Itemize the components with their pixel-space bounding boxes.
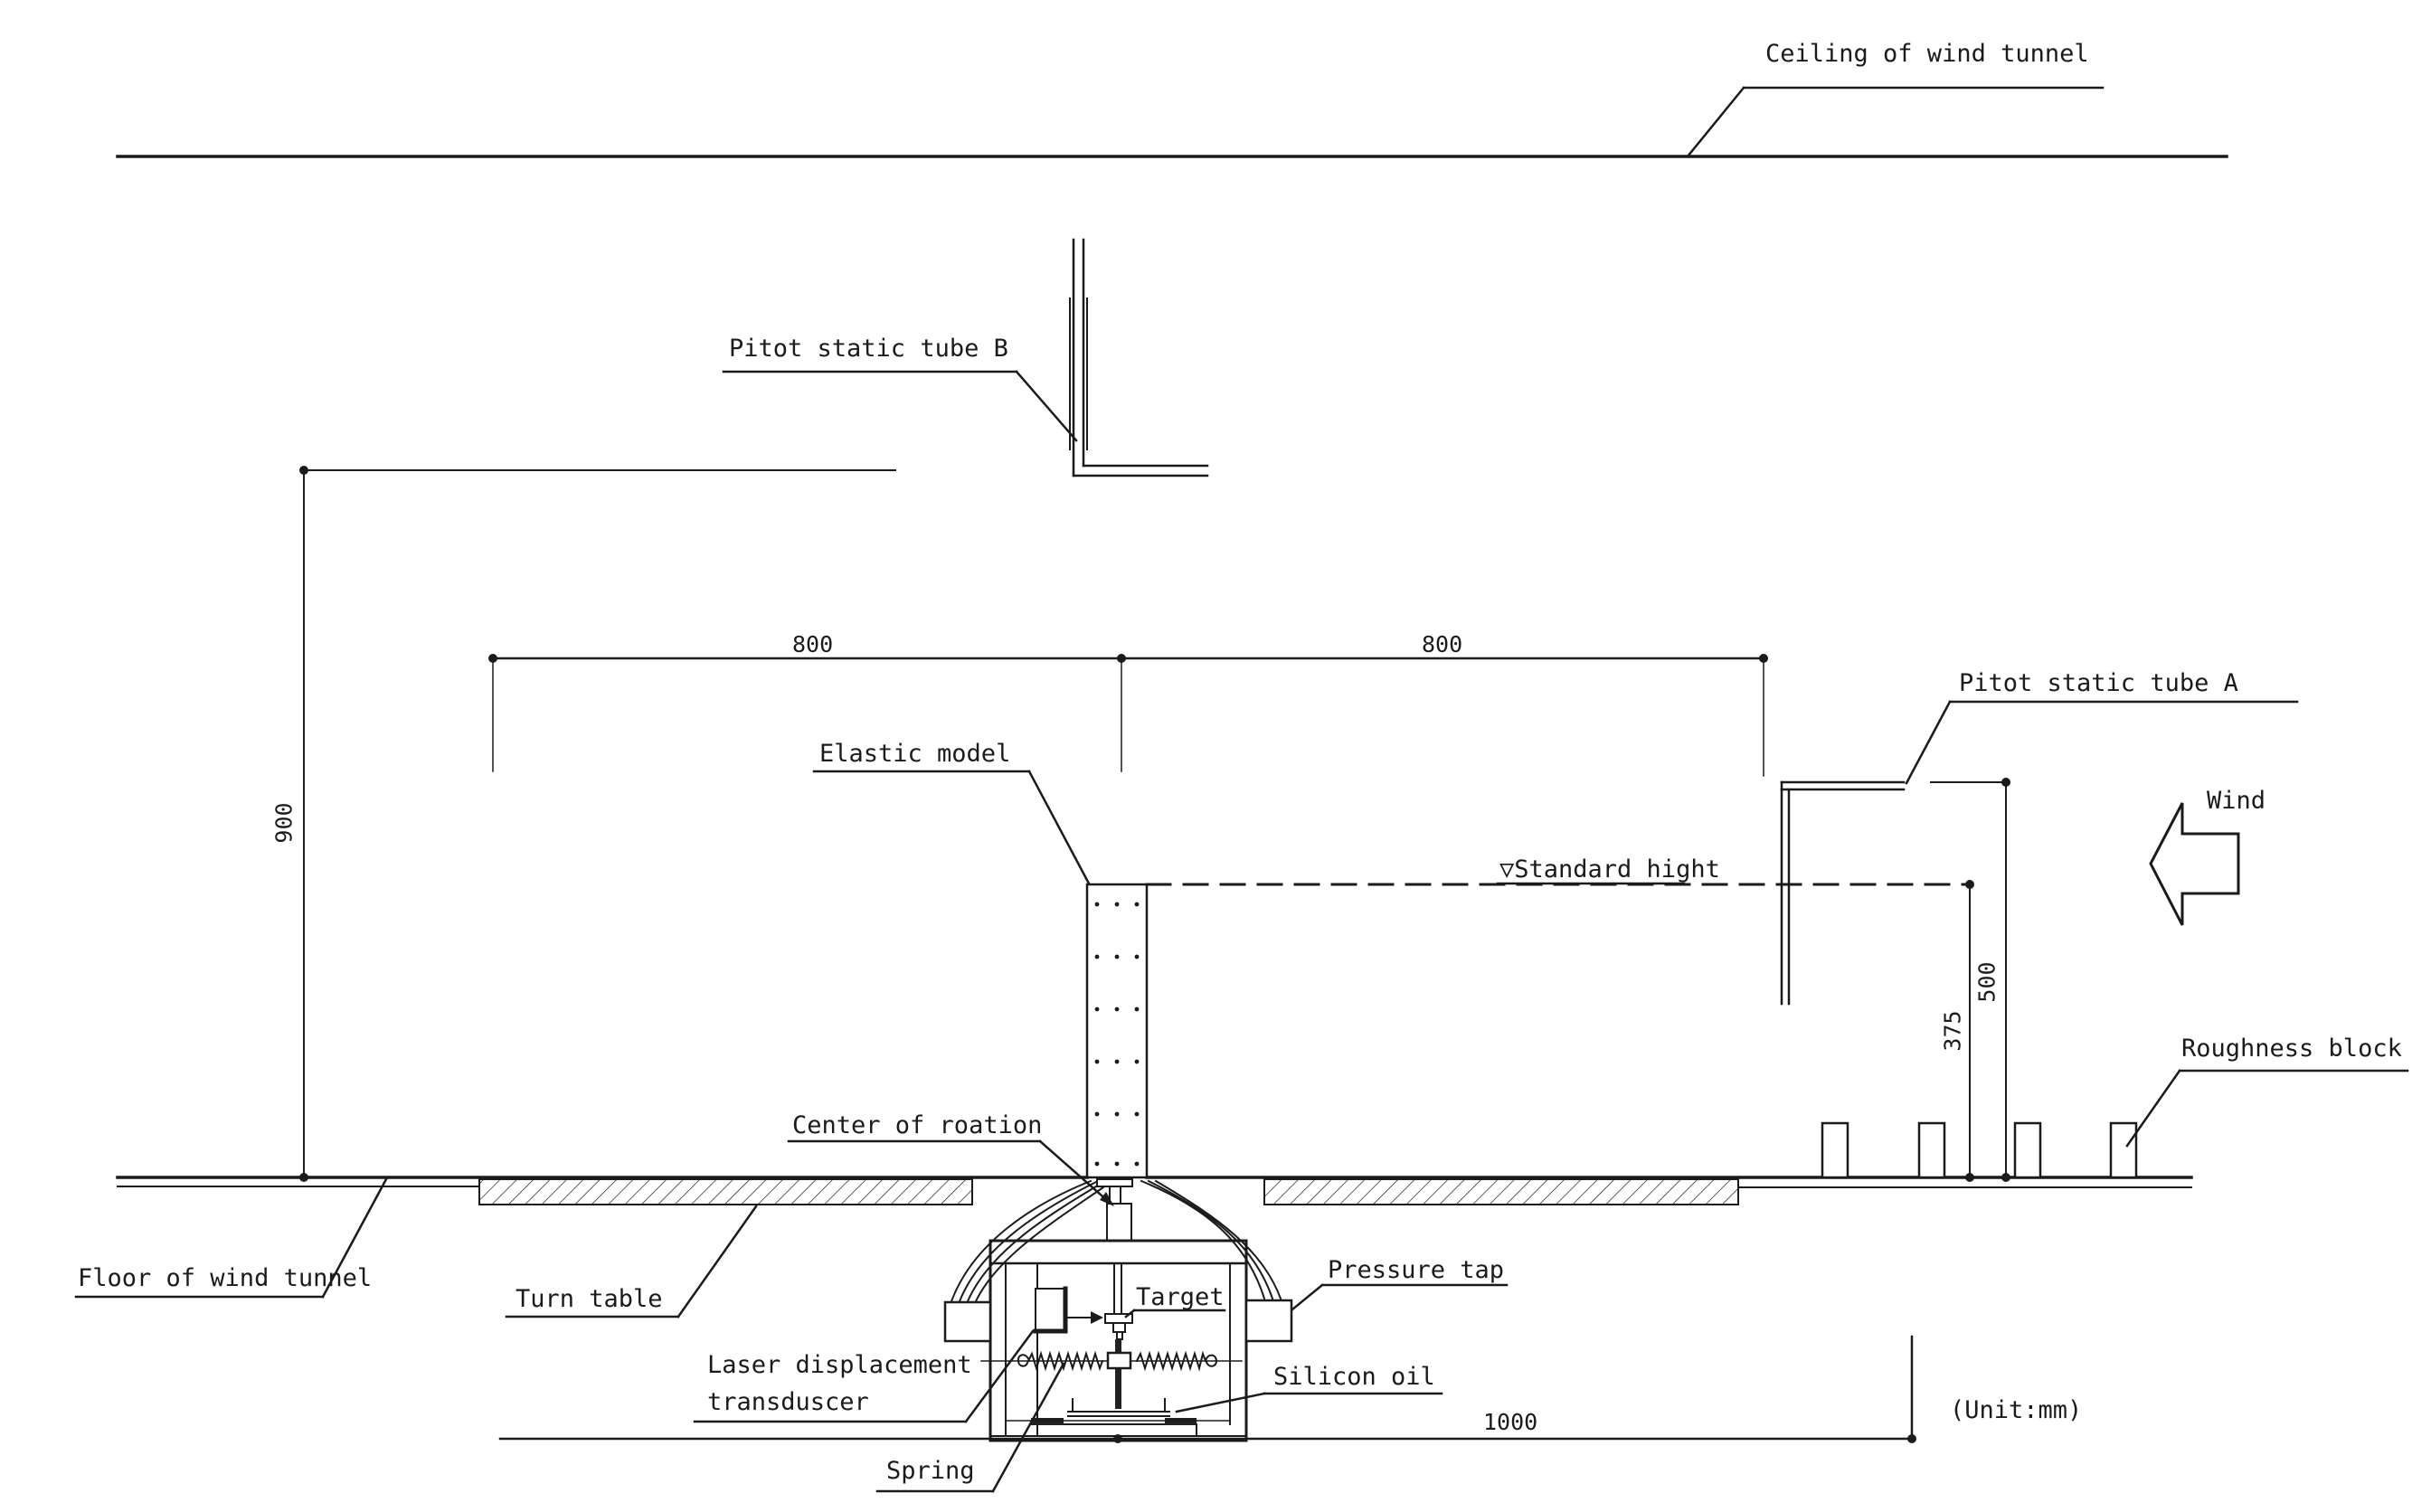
wind-tunnel-diagram: Ceiling of wind tunnel Floor of wind tun… <box>0 0 2431 1512</box>
wind-arrow-icon <box>2151 803 2238 925</box>
dimension-900 <box>299 466 895 1182</box>
label-ceiling: Ceiling of wind tunnel <box>1765 42 2089 67</box>
label-roughness-block: Roughness block <box>2181 1036 2402 1062</box>
label-laser-line1: Laser displacement <box>707 1353 972 1378</box>
label-wind: Wind <box>2207 789 2265 814</box>
standard-height-line <box>1147 884 1970 884</box>
label-target: Target <box>1136 1285 1225 1310</box>
label-pressure-tap: Pressure tap <box>1328 1258 1504 1283</box>
pitot-tube-a <box>1782 702 2297 1004</box>
label-pitot-a: Pitot static tube A <box>1959 671 2238 696</box>
dim-1000: 1000 <box>1483 1409 1537 1435</box>
label-center-of-rotation: Center of roation <box>792 1113 1042 1139</box>
ceiling-line <box>118 88 2227 156</box>
dim-800-right: 800 <box>1422 631 1462 657</box>
label-elastic-model: Elastic model <box>819 742 1010 767</box>
floor-line <box>76 1177 2191 1297</box>
label-standard-height: ▽Standard hight <box>1499 857 1720 883</box>
dim-500: 500 <box>1974 961 2001 1002</box>
label-silicon-oil: Silicon oil <box>1273 1365 1435 1390</box>
label-unit-note: (Unit:mm) <box>1950 1398 2082 1423</box>
label-spring: Spring <box>886 1459 975 1484</box>
oil-damper <box>1006 1394 1442 1425</box>
dimension-800-800 <box>488 654 1768 776</box>
dim-375: 375 <box>1940 1010 1966 1051</box>
label-floor: Floor of wind tunnel <box>78 1266 372 1291</box>
dimension-375 <box>1965 880 1974 1182</box>
label-pitot-b: Pitot static tube B <box>729 336 1008 362</box>
dim-800-left: 800 <box>792 631 833 657</box>
dim-900: 900 <box>271 802 298 843</box>
label-laser-line2: transduscer <box>707 1390 869 1415</box>
roughness-blocks <box>1822 1071 2407 1177</box>
label-turn-table: Turn table <box>516 1287 663 1312</box>
